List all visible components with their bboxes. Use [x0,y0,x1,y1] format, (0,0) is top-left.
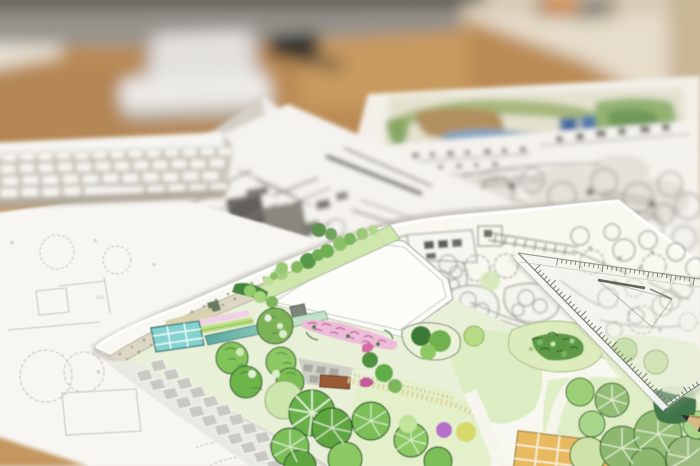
svg-text:*: * [96,367,101,381]
svg-text:*: * [152,261,157,273]
svg-text:tab: tab [96,295,105,301]
svg-text:*: * [10,239,15,251]
svg-text:*: * [93,237,98,249]
